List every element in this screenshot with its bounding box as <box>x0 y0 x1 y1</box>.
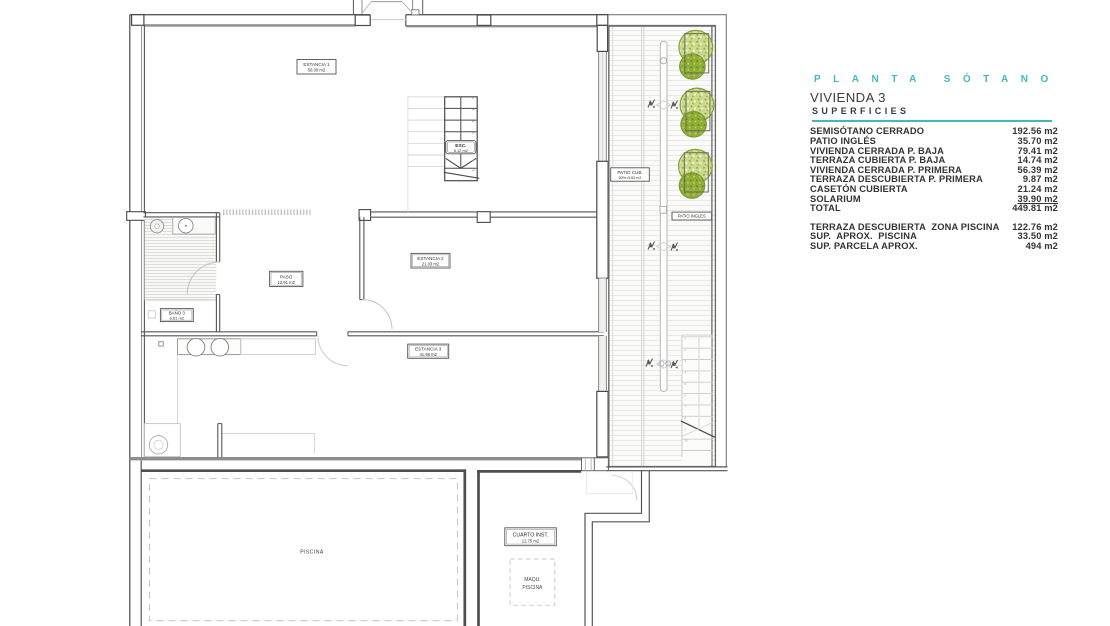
svg-text:ESTANCIA 2: ESTANCIA 2 <box>417 256 444 261</box>
svg-text:MAQU.: MAQU. <box>524 577 540 583</box>
svg-text:CUARTO INST.: CUARTO INST. <box>513 532 549 538</box>
svg-text:12.75 m2: 12.75 m2 <box>522 539 540 544</box>
svg-text:PATIO INGLES: PATIO INGLES <box>678 214 706 219</box>
svg-text:PISCINA: PISCINA <box>300 550 324 556</box>
svg-text:ESTANCIA 1: ESTANCIA 1 <box>303 62 330 67</box>
svg-text:6.12 m2: 6.12 m2 <box>454 148 468 153</box>
svg-text:6.61 m2: 6.61 m2 <box>170 316 185 321</box>
svg-text:41.98 m2: 41.98 m2 <box>419 352 437 357</box>
svg-text:PISCINA: PISCINA <box>522 585 543 591</box>
svg-text:PATIO CUB.: PATIO CUB. <box>617 170 642 175</box>
svg-text:PASO: PASO <box>280 274 293 279</box>
svg-text:12.91 m2: 12.91 m2 <box>277 280 295 285</box>
svg-text:ESTANCIA 3: ESTANCIA 3 <box>415 346 442 351</box>
svg-text:21.03 m2: 21.03 m2 <box>422 261 440 266</box>
svg-text:50%=5.65 m2: 50%=5.65 m2 <box>619 176 642 180</box>
svg-text:56.00 m2: 56.00 m2 <box>308 68 326 73</box>
